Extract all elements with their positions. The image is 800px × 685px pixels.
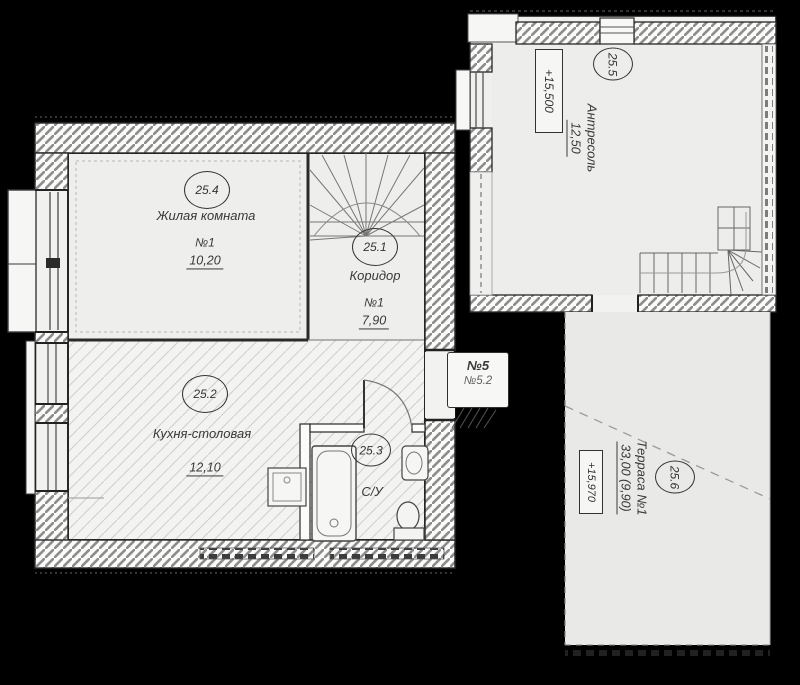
- mezzanine-top-window: [600, 18, 634, 44]
- kitchen-sink-fixture: [268, 468, 306, 506]
- room-circle-terrace: 25.6: [655, 461, 695, 494]
- room-label-living-unit: №1: [195, 237, 215, 250]
- mezzanine-floor: [492, 44, 762, 295]
- room-circle-mezzanine: 25.5: [593, 48, 633, 81]
- elevation-mark-terrace: +15,970: [579, 450, 603, 514]
- room-label-corridor-area: 7,90: [359, 314, 389, 327]
- room-label-terrace: Терраса №1 33,00 (9,90): [619, 440, 650, 515]
- room-label-bathroom-name: С/У: [361, 485, 382, 499]
- floor-plan-canvas: 25.4 Жилая комната №1 10,20 25.1 Коридор…: [0, 0, 800, 685]
- room-label-mezzanine-name: Антресоль: [585, 104, 600, 172]
- room-label-kitchen-area: 12,10: [186, 461, 223, 474]
- terrace-bottom-strip: [565, 647, 770, 656]
- room-label-mezzanine-area: 12,50: [569, 104, 583, 172]
- entrance-tag-line1: №5: [448, 358, 508, 373]
- elevation-mark-mezzanine: +15,500: [535, 49, 563, 133]
- washbasin-fixture: [402, 446, 428, 480]
- room-circle-corridor: 25.1: [352, 228, 398, 266]
- mezzanine-right-wall: [762, 44, 776, 295]
- corner-box: [468, 14, 518, 42]
- room-label-terrace-area: 33,00 (9,90): [619, 440, 633, 515]
- room-label-corridor-unit: №1: [364, 297, 384, 310]
- room-label-corridor-name: Коридор: [350, 269, 401, 283]
- room-circle-living: 25.4: [184, 171, 230, 209]
- entrance-tag-line2: №5.2: [448, 375, 508, 387]
- room-label-kitchen-name: Кухня-столовая: [153, 427, 251, 441]
- room-label-mezzanine: Антресоль 12,50: [569, 104, 600, 172]
- room-circle-kitchen: 25.2: [182, 375, 228, 413]
- bathtub-fixture: [312, 446, 356, 541]
- room-label-terrace-name: Терраса №1: [635, 440, 650, 515]
- entrance-number-plate: №5 №5.2: [447, 352, 509, 408]
- floor-plan-drawing: [0, 0, 800, 685]
- room-label-living-area: 10,20: [186, 254, 223, 267]
- room-label-living-name: Жилая комната: [157, 209, 256, 223]
- room-circle-bathroom: 25.3: [351, 434, 391, 467]
- apartment-plan: [8, 117, 496, 573]
